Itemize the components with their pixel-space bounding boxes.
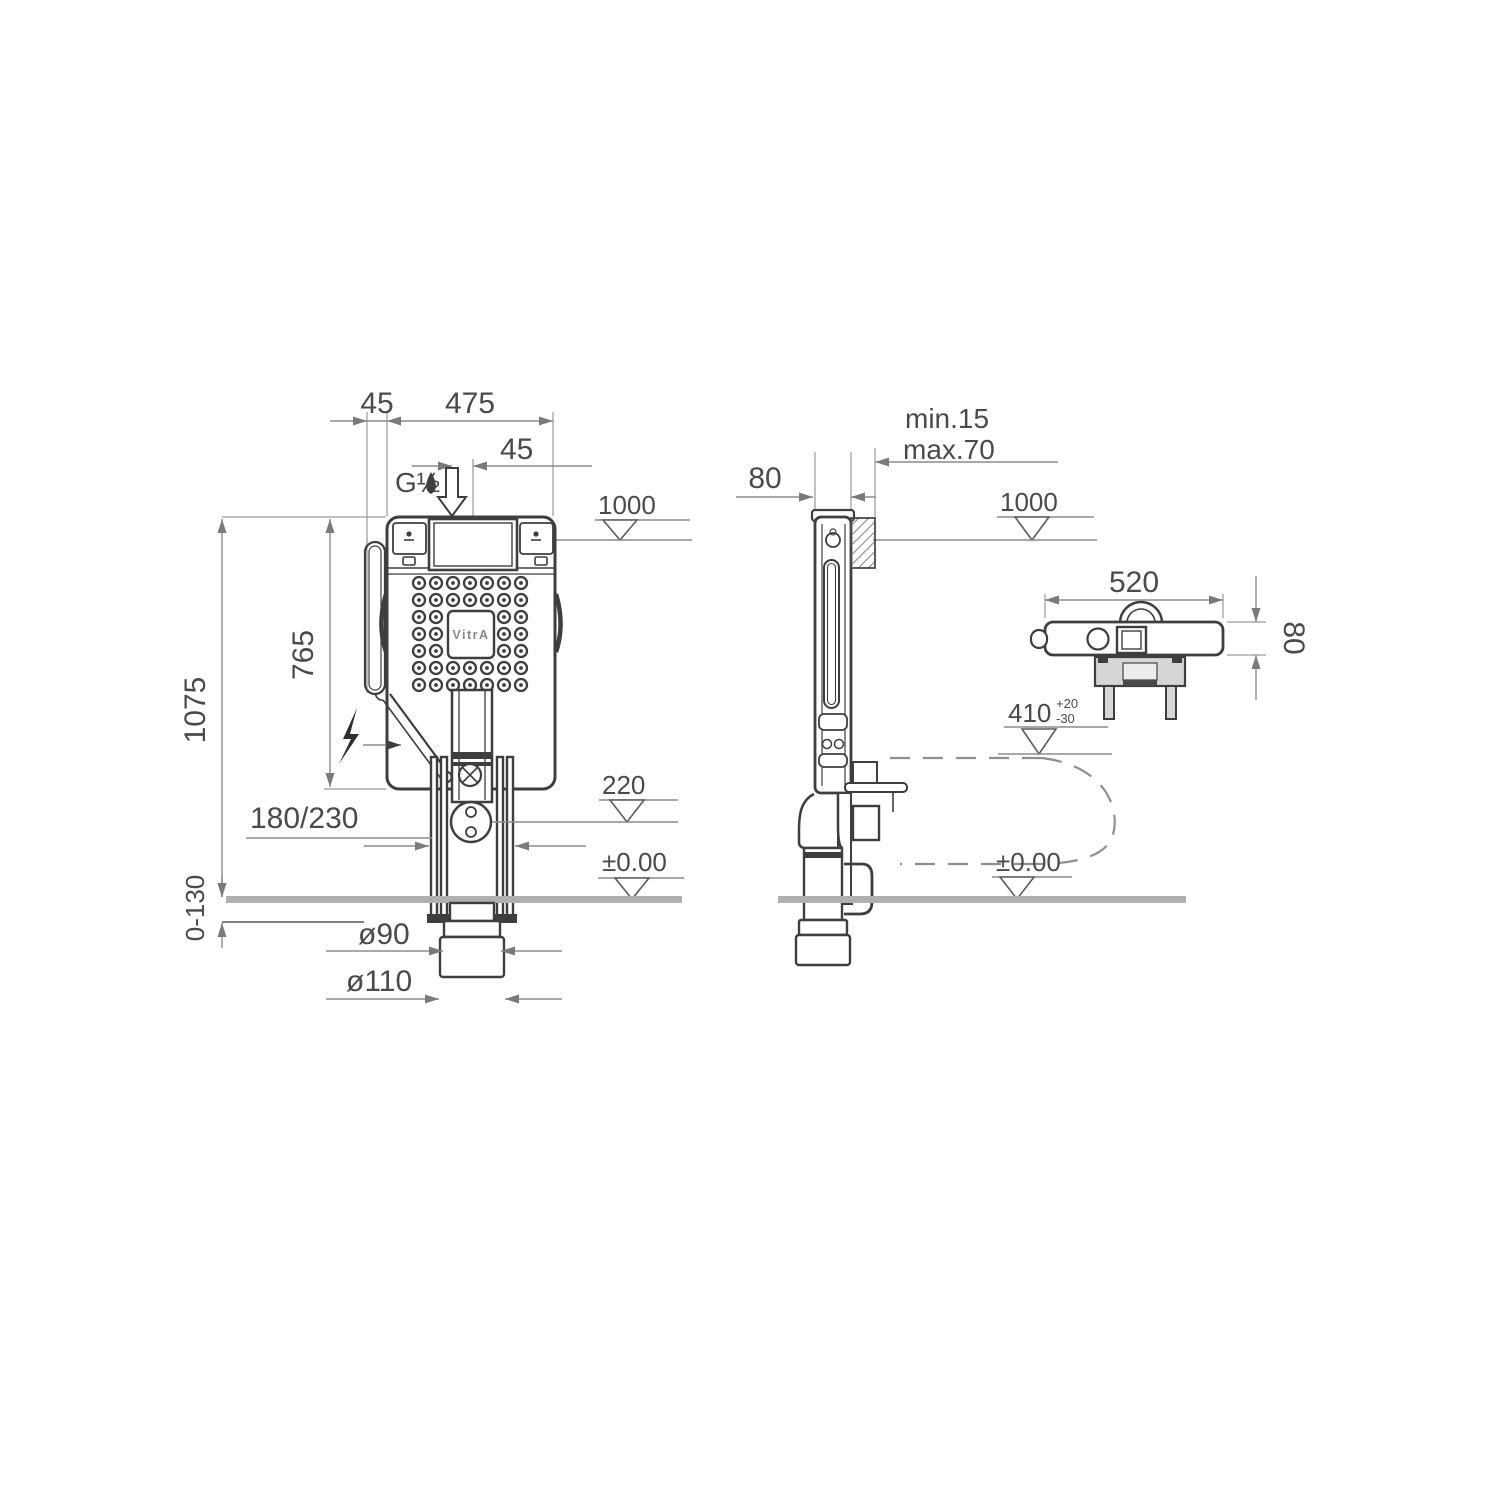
front-view: 45 475 45 G½ 1000 [179, 387, 692, 999]
ear-panel-right [520, 523, 553, 554]
wall-min-label: min.15 [905, 403, 989, 434]
inlet-circle [1088, 629, 1109, 650]
ear-panel-left [393, 523, 426, 554]
front-level-1000: 1000 [556, 490, 692, 540]
level-marker-triangle [603, 520, 637, 540]
dim-80-depth-label: 80 [748, 462, 781, 495]
fixing-distance-dim: 180/230 [246, 802, 586, 846]
dim-0-130-label: 0-130 [180, 875, 210, 942]
screw-left [403, 557, 415, 565]
side-floor-label: ±0.00 [996, 847, 1061, 877]
front-level-1000-label: 1000 [598, 490, 656, 520]
front-floor-label: ±0.00 [602, 847, 667, 877]
dim-45-supply-label: 45 [500, 433, 533, 466]
side-level-1000-label: 1000 [1000, 487, 1058, 517]
installation-drawing: 45 475 45 G½ 1000 [0, 0, 1500, 1500]
outlet-connector [853, 806, 879, 840]
bend-pipe-arc [1120, 602, 1162, 623]
brand-label: VitrA [452, 628, 489, 642]
support-bracket [845, 783, 907, 792]
side-level-1000: 1000 [873, 487, 1097, 540]
dia-110-label: ø110 [346, 965, 412, 998]
level-410-tol-plus: +20 [1056, 696, 1078, 711]
dim-1075-label: 1075 [179, 677, 212, 744]
wall-section-hatch [851, 518, 875, 568]
level-410-label: 410 [1008, 698, 1051, 728]
leg-right [1166, 686, 1176, 719]
technical-drawing-canvas: 45 475 45 G½ 1000 [0, 0, 1500, 1500]
level-220-label: 220 [602, 770, 645, 800]
level-marker-triangle [1022, 729, 1056, 754]
wall-max-label: max.70 [903, 434, 995, 465]
supply-arrow-icon [438, 468, 466, 516]
access-box [429, 519, 517, 570]
side-level-410: 410 +20 -30 [998, 696, 1112, 754]
dim-80-top-label: 80 [1277, 621, 1310, 654]
leg-left [1104, 686, 1114, 719]
left-nub [1031, 630, 1047, 648]
flush-elbow-side [853, 762, 877, 783]
side-clip-right [556, 594, 561, 652]
front-left-dimensions: 1075 765 0-130 [179, 517, 386, 948]
front-floor-level: ±0.00 [226, 847, 684, 903]
dia-90-label: ø90 [358, 918, 410, 951]
level-410-tol-minus: -30 [1056, 711, 1075, 726]
level-marker-triangle [1000, 877, 1034, 899]
lightning-bolt-icon [339, 708, 359, 764]
dim-475-label: 475 [445, 387, 495, 420]
dim-180-230-label: 180/230 [250, 802, 358, 835]
level-marker-triangle [1015, 517, 1049, 540]
dim-765-label: 765 [287, 630, 320, 680]
screw-right [535, 557, 547, 565]
level-marker-triangle [610, 800, 644, 822]
dim-45-left-label: 45 [360, 387, 393, 420]
dim-520-label: 520 [1109, 566, 1159, 599]
floor-line [778, 896, 1186, 903]
level-marker-triangle [615, 878, 649, 899]
water-supply-group: G½ [395, 467, 466, 516]
